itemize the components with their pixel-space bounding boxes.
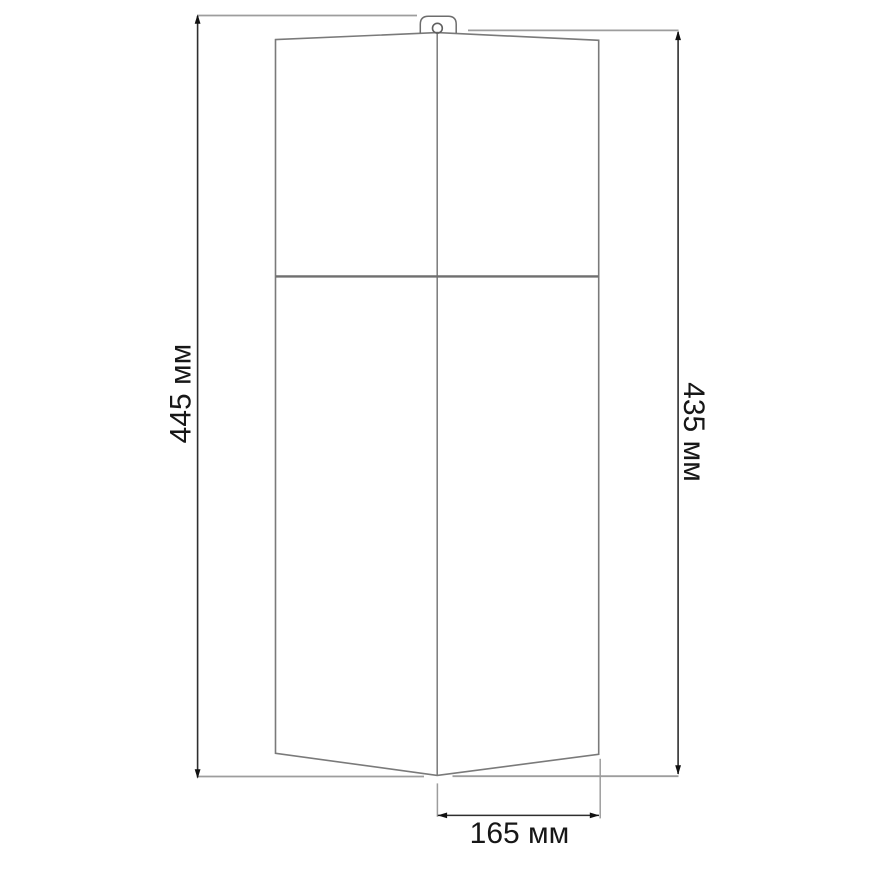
svg-text:165 мм: 165 мм [470, 817, 570, 850]
svg-text:445 мм: 445 мм [165, 344, 198, 444]
svg-text:435 мм: 435 мм [677, 382, 710, 482]
